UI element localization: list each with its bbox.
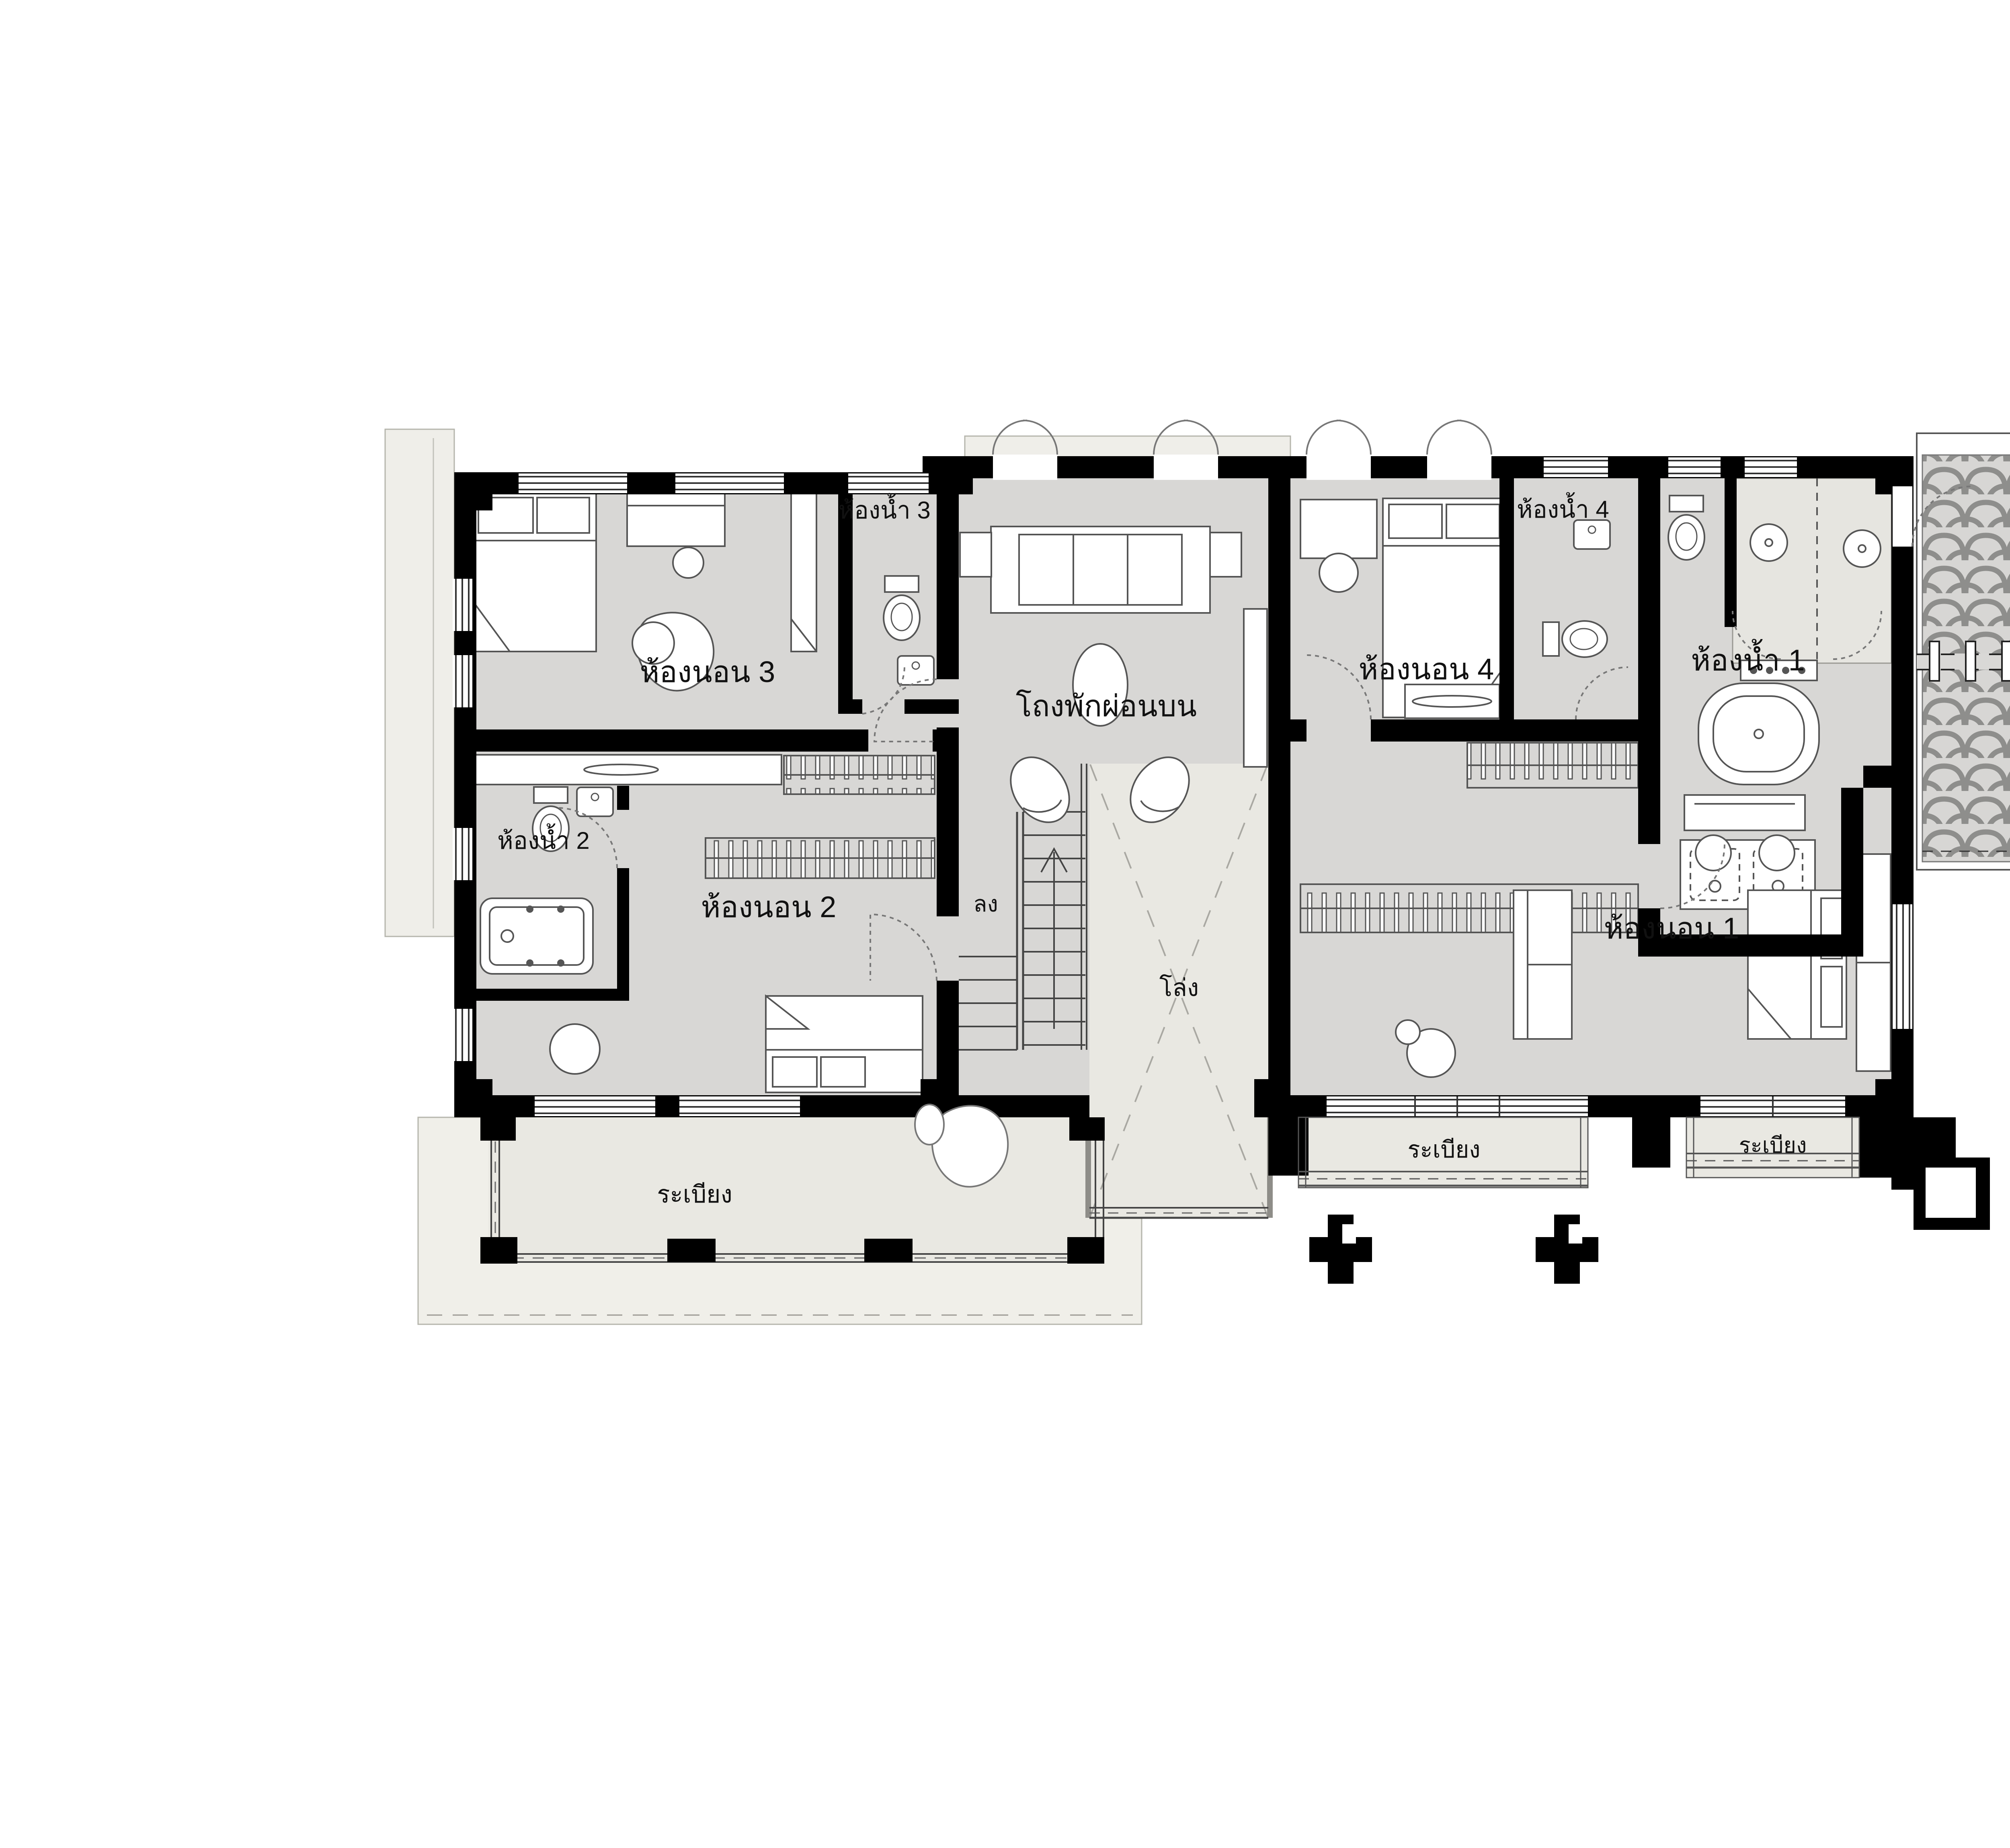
porch-column-2 <box>1536 1215 1598 1284</box>
window-balcony-b <box>1700 1096 1845 1116</box>
label-bedroom3: ห้องนอน 3 <box>640 655 775 688</box>
hall-tv-panel <box>1244 609 1267 767</box>
closet-master-bottom <box>1300 884 1638 932</box>
left-eave-strip <box>385 429 454 936</box>
label-balcony-a: ระเบียง <box>1407 1137 1480 1163</box>
bedroom4-dresser <box>1405 684 1499 718</box>
bathroom2-sink-icon <box>577 787 613 816</box>
label-stair-down: ลง <box>973 891 998 916</box>
window-shower-top <box>1745 457 1797 477</box>
wall-bathroom1-west <box>1638 456 1660 844</box>
wall-bedroom3-south <box>454 729 868 752</box>
label-balcony-b: ระเบียง <box>1739 1133 1807 1158</box>
window-bedroom2-bottom-1 <box>535 1096 655 1116</box>
hall-sofa <box>960 527 1241 613</box>
slider-balcony-a <box>1327 1096 1588 1116</box>
bathroom3-toilet-icon <box>884 576 920 640</box>
window-bedroom2-bottom-2 <box>679 1096 800 1116</box>
label-bathroom1: ห้องน้ำ 1 <box>1691 639 1805 677</box>
window-left-2 <box>453 655 472 707</box>
label-void: โล่ง <box>1159 974 1199 1001</box>
door-to-roof-opening <box>1893 486 1912 547</box>
window-bedroom3-top-1 <box>519 473 627 493</box>
column-between-balconies <box>1632 1097 1670 1168</box>
closet-band-b <box>706 838 935 878</box>
bedroom1-bed <box>1748 890 1846 1039</box>
label-upper-hall: โถงพักผ่อนบน <box>1016 689 1197 723</box>
bedroom1-pouf-small <box>1396 1020 1420 1044</box>
window-bathroom4-top <box>1544 457 1608 477</box>
window-bedroom3-top-2 <box>675 473 784 493</box>
bathroom1-toilet-icon <box>1668 496 1704 560</box>
bedroom3-ottoman <box>673 547 703 578</box>
label-bedroom2: ห้องนอน 2 <box>701 890 837 924</box>
porch-column-1 <box>1309 1215 1372 1284</box>
wall-hall-east <box>1268 456 1290 1117</box>
window-bathroom2-left <box>453 828 472 880</box>
french-door-bedroom4-1 <box>1306 420 1371 455</box>
bedroom1-sofa <box>1514 890 1572 1039</box>
window-bedroom2-left <box>453 1009 472 1061</box>
wall-bathroom3-west <box>838 494 853 713</box>
floor-plan-sheet: ห้องนอน 3 ห้องน้ำ 3 โถงพักผ่อนบน ห้องนอน… <box>0 0 2010 1848</box>
closet-band-a <box>784 756 935 794</box>
bedroom2-chair <box>550 1024 600 1074</box>
label-balcony-main: ระเบียง <box>657 1181 732 1208</box>
label-bathroom3: ห้องน้ำ 3 <box>838 493 931 524</box>
label-bedroom1: ห้องนอน 1 <box>1604 912 1739 945</box>
wall-bathroom2-east <box>617 786 629 810</box>
window-bathroom3-top <box>848 473 929 493</box>
column-balcony-a-west <box>1268 1095 1309 1176</box>
bedroom3-bed <box>471 492 596 652</box>
bedroom4-chair <box>1319 553 1358 592</box>
wall-wc-partition <box>1725 478 1737 627</box>
wall-bedroom4-south <box>1371 719 1638 742</box>
wall-bathroom2-south <box>476 989 629 1001</box>
window-bedroom1-right <box>1893 904 1912 1029</box>
label-bathroom2: ห้องน้ำ 2 <box>497 823 590 854</box>
closet-master-top <box>1467 743 1638 788</box>
window-bathroom1-top <box>1668 457 1721 477</box>
bathroom4-sink-icon <box>1574 520 1610 549</box>
top-eave-band <box>965 436 1290 457</box>
bathroom2-bathtub <box>480 898 593 974</box>
label-bedroom4: ห้องนอน 4 <box>1359 652 1494 686</box>
counter-lamp <box>584 764 658 775</box>
terrace-floor <box>488 1117 1103 1262</box>
label-bathroom4: ห้องน้ำ 4 <box>1517 492 1609 523</box>
shower-floor <box>1733 478 1891 663</box>
roof <box>1917 433 2010 882</box>
window-left-1 <box>453 579 472 631</box>
floor-plan-drawing: ห้องนอน 3 ห้องน้ำ 3 โถงพักผ่อนบน ห้องนอน… <box>0 0 2010 1848</box>
bedroom4-desk <box>1300 500 1377 558</box>
bathroom4-toilet-icon <box>1543 621 1607 657</box>
wall-bathroom4-west <box>1499 478 1514 719</box>
bedroom3-sofa <box>627 492 725 546</box>
french-door-bedroom4-2 <box>1427 420 1491 455</box>
bedroom3-wardrobe <box>791 480 816 652</box>
bedroom2-bed <box>766 996 923 1092</box>
